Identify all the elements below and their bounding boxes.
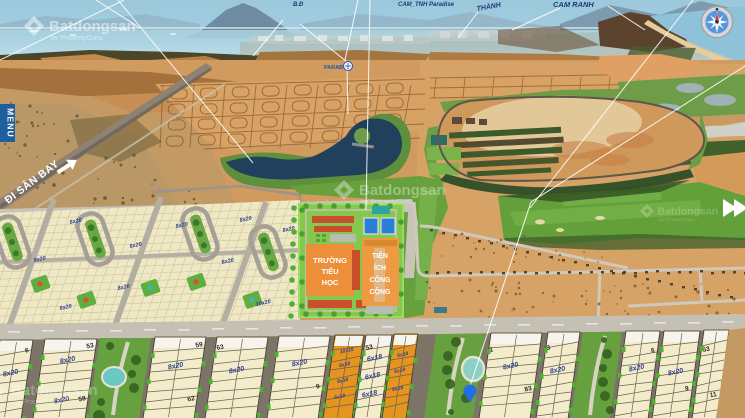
svg-text:TIỂU: TIỂU (321, 267, 338, 276)
svg-text:Batdongsan: Batdongsan (359, 182, 446, 199)
svg-text:Batdongsan: Batdongsan (658, 206, 719, 218)
svg-text:CAM RANH: CAM RANH (553, 0, 594, 9)
svg-text:MENU: MENU (6, 108, 16, 138)
svg-text:PARAB: PARAB (324, 65, 343, 71)
svg-text:Batdongsan: Batdongsan (11, 382, 98, 399)
svg-text:Batdongsan: Batdongsan (49, 18, 136, 35)
svg-text:by PropertyGuru: by PropertyGuru (51, 35, 102, 42)
svg-text:TRƯỜNG: TRƯỜNG (313, 256, 347, 265)
svg-text:CAM_TNH Paradise: CAM_TNH Paradise (398, 2, 455, 8)
svg-text:HỌC: HỌC (322, 278, 339, 287)
svg-text:ÍCH: ÍCH (374, 263, 386, 272)
svg-text:B.Đ: B.Đ (293, 2, 304, 8)
svg-text:CÔNG: CÔNG (370, 275, 392, 284)
svg-text:by PropertyGuru: by PropertyGuru (13, 399, 64, 406)
svg-text:TIỆN: TIỆN (372, 251, 388, 260)
svg-text:CỘNG: CỘNG (370, 287, 392, 296)
svg-text:by PropertyGuru: by PropertyGuru (659, 217, 695, 223)
svg-text:by PropertyGuru: by PropertyGuru (361, 199, 412, 206)
